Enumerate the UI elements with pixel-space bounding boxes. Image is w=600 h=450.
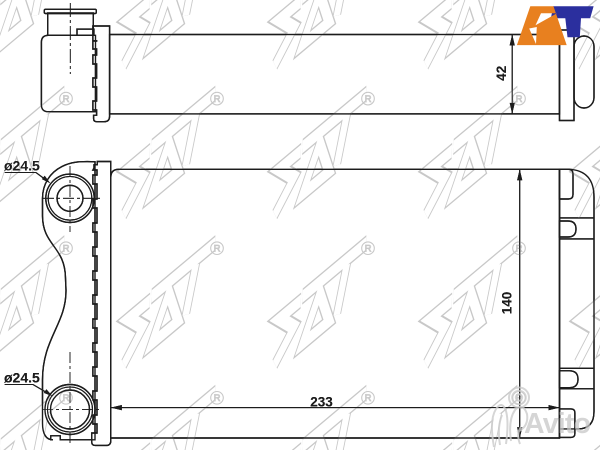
svg-text:R: R: [63, 393, 70, 404]
svg-text:R: R: [63, 94, 70, 105]
svg-text:R: R: [365, 94, 372, 105]
svg-text:42: 42: [494, 66, 509, 81]
svg-text:R: R: [516, 244, 523, 255]
svg-text:R: R: [516, 94, 523, 105]
svg-text:ø24.5: ø24.5: [4, 158, 40, 174]
svg-text:R: R: [63, 244, 70, 255]
svg-text:140: 140: [500, 292, 515, 315]
svg-text:R: R: [214, 244, 221, 255]
svg-text:R: R: [365, 393, 372, 404]
svg-text:R: R: [365, 244, 372, 255]
svg-text:R: R: [214, 393, 221, 404]
svg-text:ø24.5: ø24.5: [4, 370, 40, 386]
svg-text:Avito: Avito: [524, 408, 591, 440]
svg-text:233: 233: [310, 394, 333, 409]
svg-text:R: R: [214, 94, 221, 105]
